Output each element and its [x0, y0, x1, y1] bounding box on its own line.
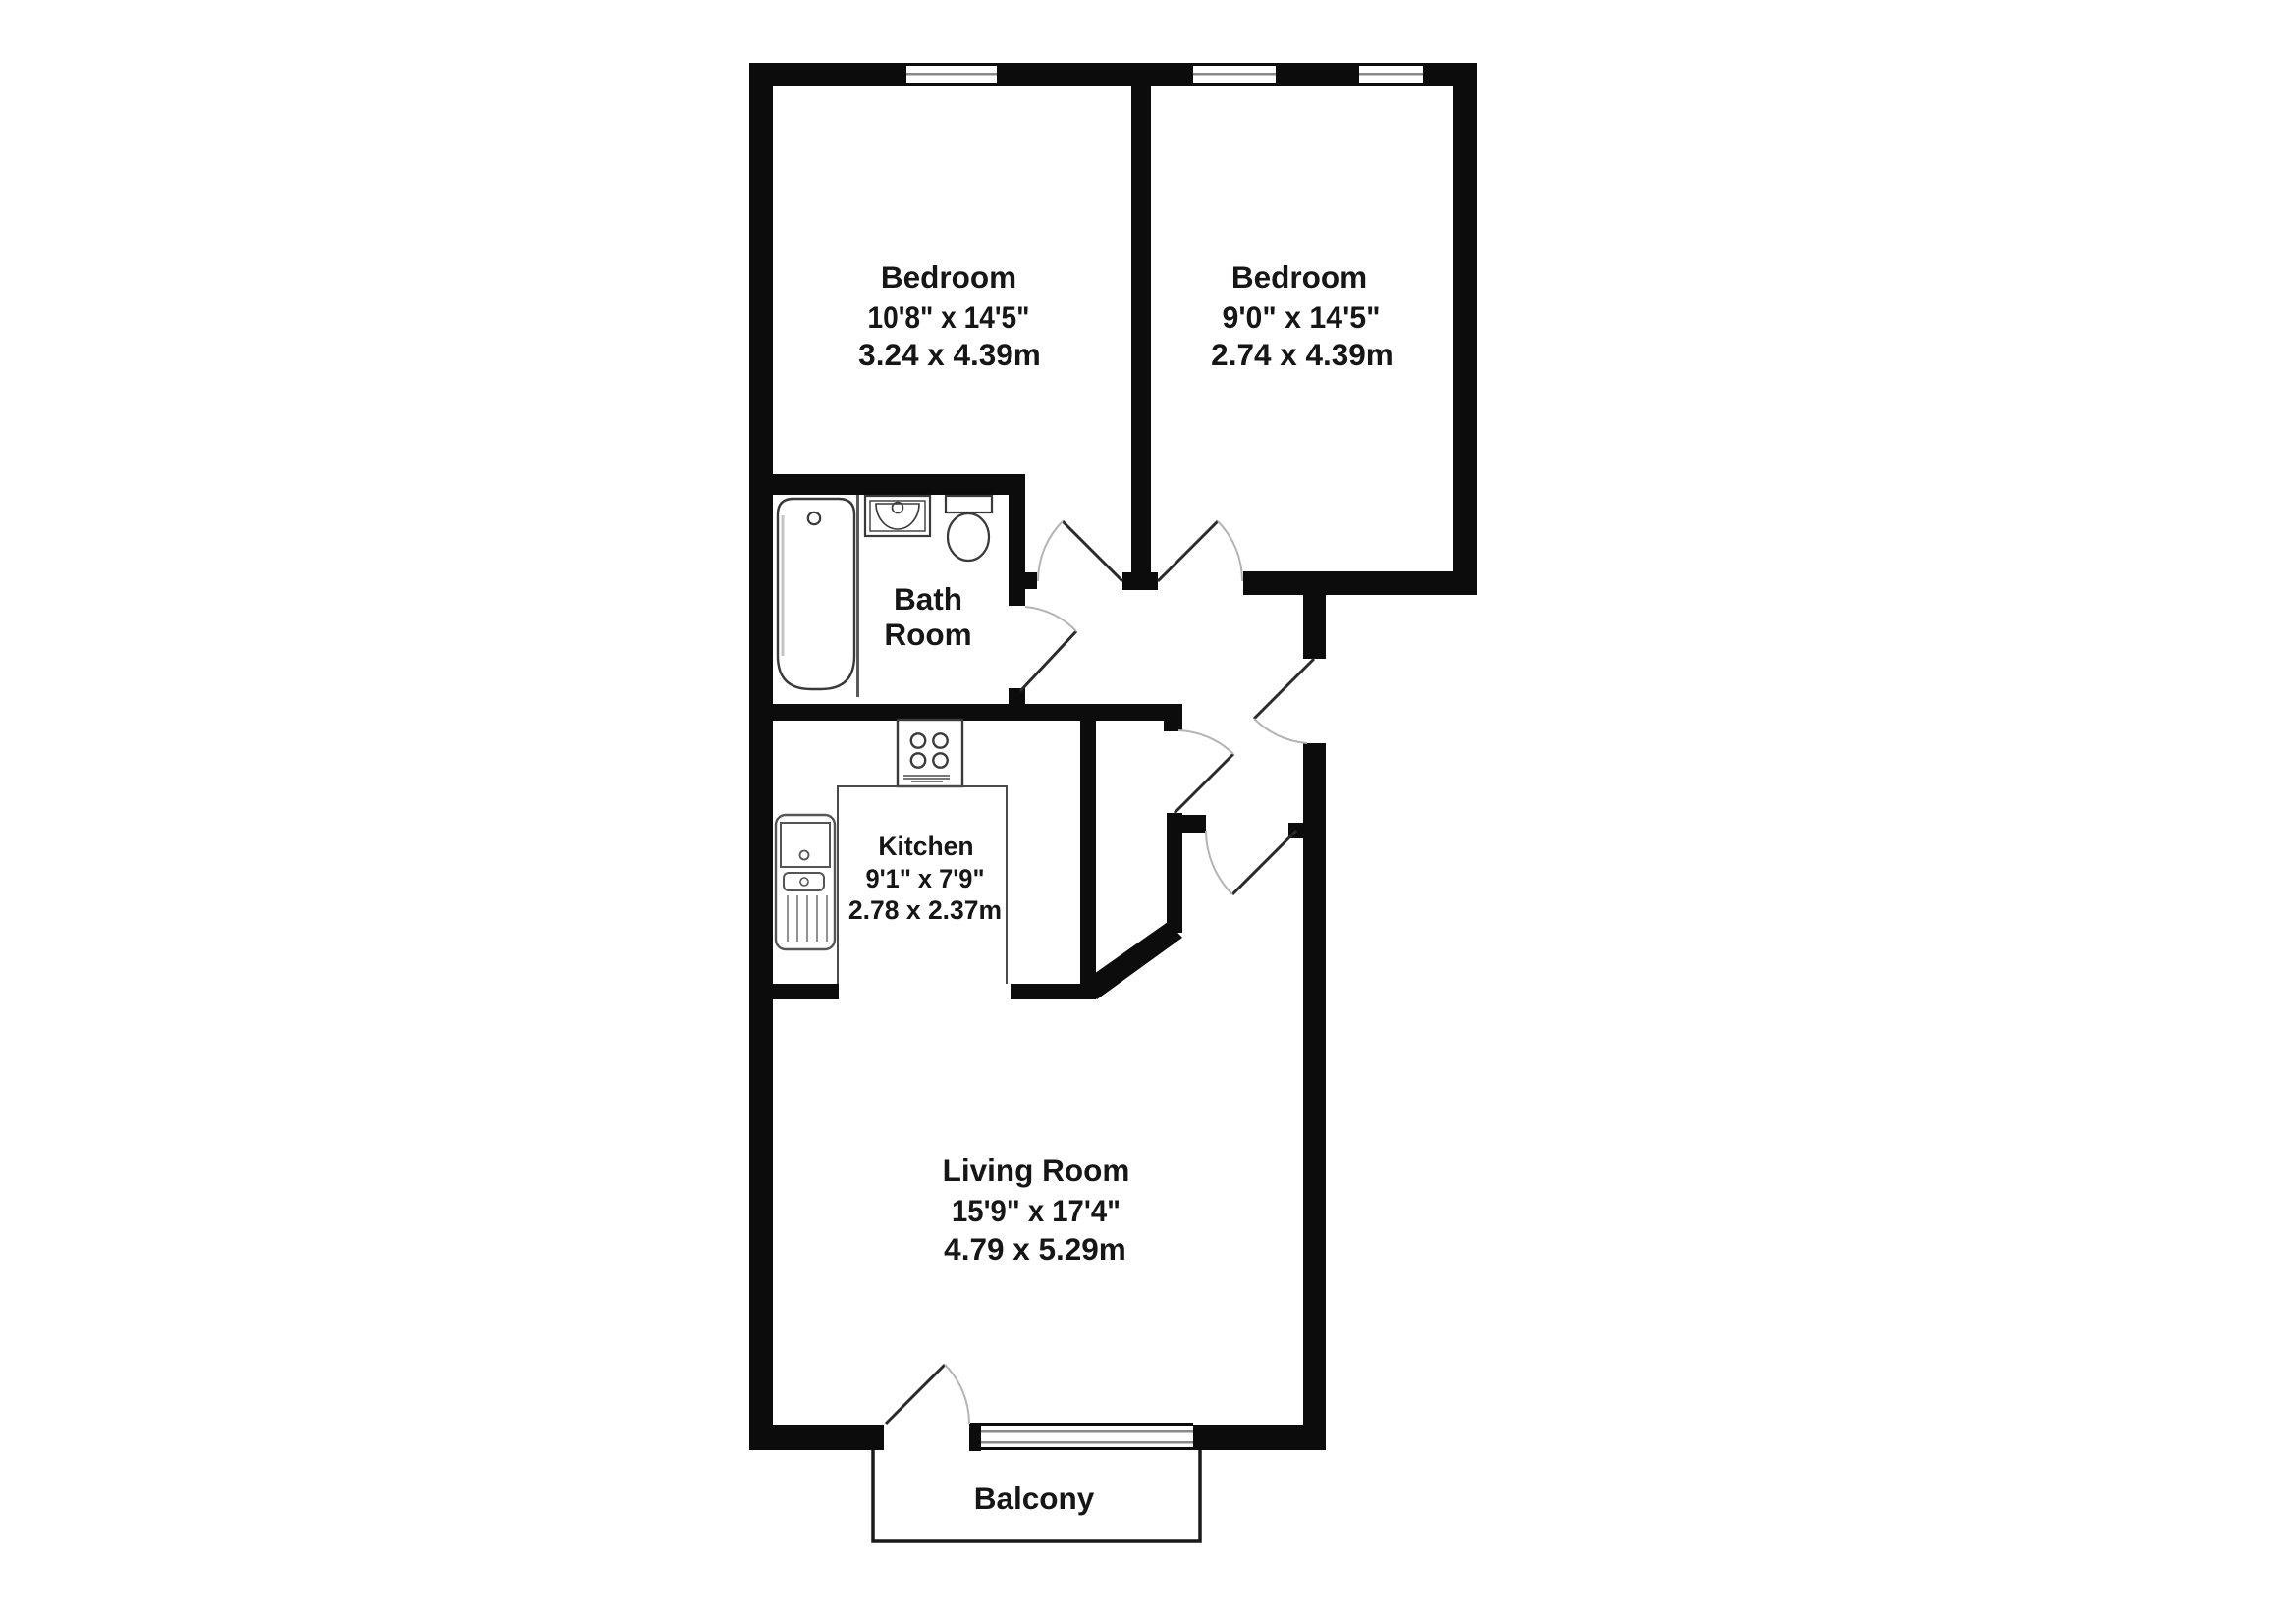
- svg-text:Room: Room: [884, 617, 971, 652]
- svg-text:Bedroom: Bedroom: [881, 259, 1016, 295]
- svg-text:Kitchen: Kitchen: [878, 832, 973, 861]
- svg-text:Bath: Bath: [894, 581, 962, 617]
- svg-text:Balcony: Balcony: [974, 1481, 1095, 1516]
- svg-text:10'8" x 14'5": 10'8" x 14'5": [868, 299, 1030, 335]
- svg-text:9'0" x 14'5": 9'0" x 14'5": [1223, 299, 1381, 335]
- svg-text:3.24 x 4.39m: 3.24 x 4.39m: [858, 337, 1041, 372]
- svg-text:9'1" x 7'9": 9'1" x 7'9": [866, 864, 985, 893]
- svg-text:2.74 x 4.39m: 2.74 x 4.39m: [1211, 337, 1394, 372]
- svg-text:15'9" x 17'4": 15'9" x 17'4": [952, 1193, 1121, 1228]
- svg-text:2.78 x 2.37m: 2.78 x 2.37m: [848, 895, 1002, 925]
- svg-text:4.79 x 5.29m: 4.79 x 5.29m: [944, 1231, 1126, 1266]
- svg-text:Bedroom: Bedroom: [1231, 259, 1367, 295]
- svg-text:Living Room: Living Room: [943, 1153, 1130, 1188]
